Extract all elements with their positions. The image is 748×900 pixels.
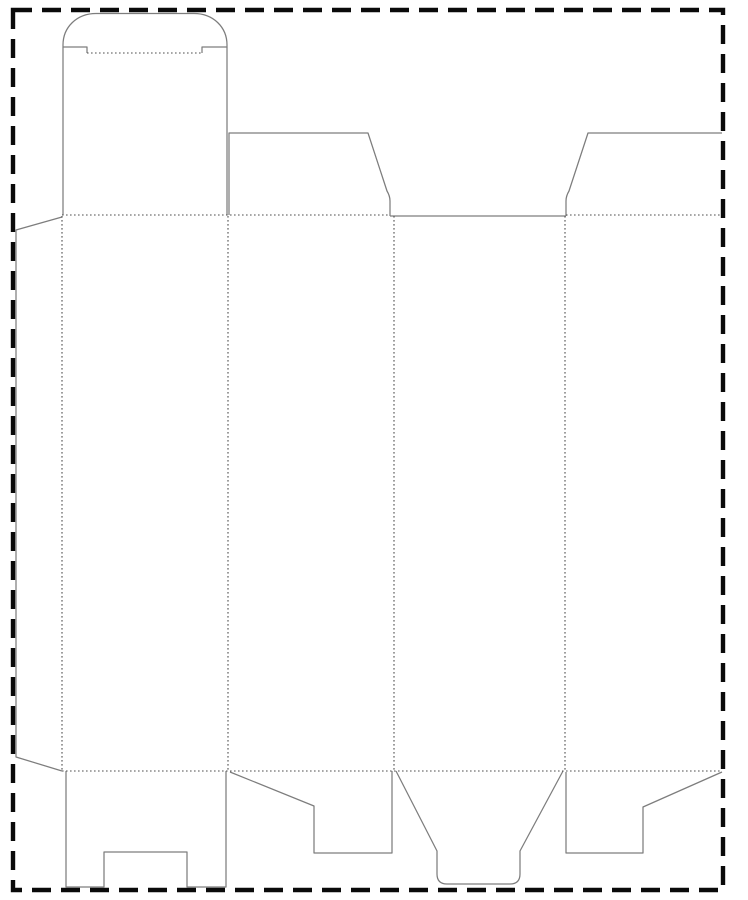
top-dust-flap-left: [229, 133, 390, 216]
dieline-sheet: [0, 0, 748, 900]
sheet-border: [13, 10, 723, 890]
glue-flap-outline: [16, 217, 62, 771]
bottom-dust-flap-left: [230, 771, 392, 853]
cut-lines-group: [16, 14, 722, 888]
bottom-dust-flap-right: [566, 772, 722, 853]
top-dust-flap-right: [566, 133, 722, 216]
bottom-tuck-flap: [396, 771, 563, 884]
tuck-flap-outline: [63, 14, 227, 54]
sheet-border-group: [13, 10, 723, 890]
fold-lines-group: [62, 53, 722, 771]
dieline-drawing: [0, 0, 748, 900]
bottom-lock-flap: [66, 771, 226, 887]
